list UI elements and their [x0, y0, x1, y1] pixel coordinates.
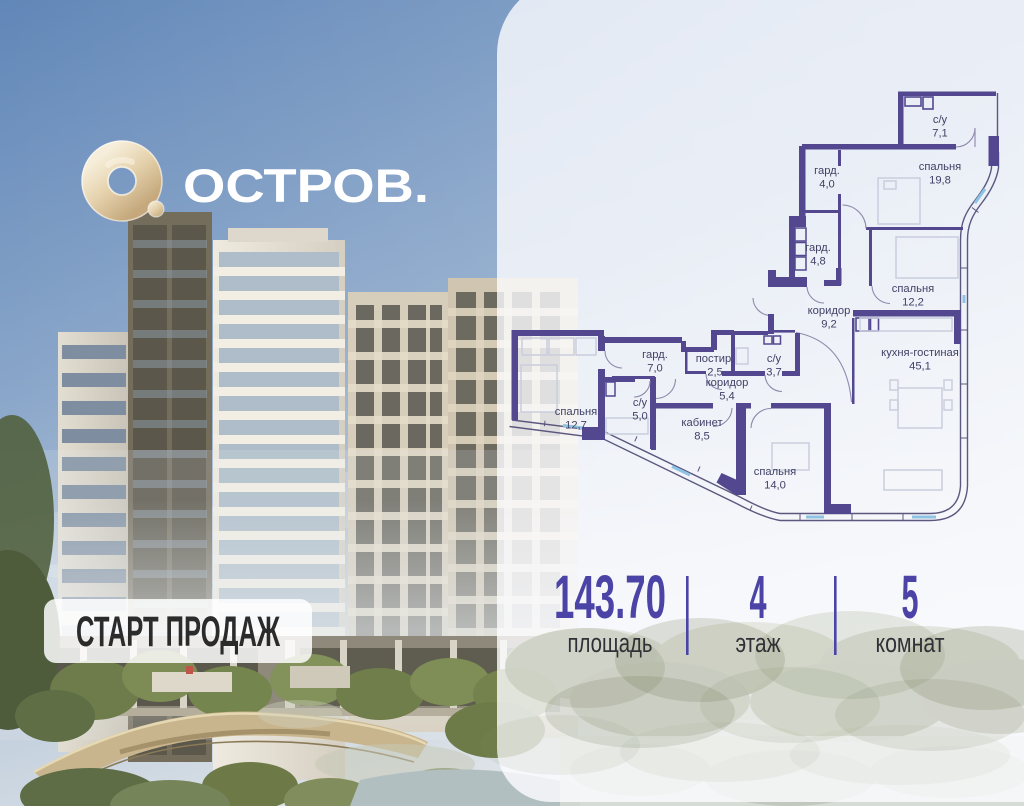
- svg-text:с/у5,0: с/у5,0: [632, 397, 648, 423]
- svg-text:коридор9,2: коридор9,2: [808, 305, 851, 331]
- svg-text:гард.4,8: гард.4,8: [805, 242, 831, 268]
- svg-text:4: 4: [750, 563, 767, 631]
- svg-text:этаж: этаж: [736, 628, 781, 658]
- svg-text:кабинет8,5: кабинет8,5: [681, 417, 722, 443]
- svg-text:гард.4,0: гард.4,0: [814, 165, 840, 191]
- svg-text:с/у3,7: с/у3,7: [766, 353, 782, 379]
- svg-text:площадь: площадь: [568, 628, 653, 658]
- svg-text:гард.7,0: гард.7,0: [642, 349, 668, 375]
- svg-text:спальня12,2: спальня12,2: [892, 283, 934, 309]
- svg-text:с/у7,1: с/у7,1: [932, 114, 948, 140]
- svg-text:кухня-гостиная45,1: кухня-гостиная45,1: [881, 347, 959, 373]
- svg-text:коридор5,4: коридор5,4: [706, 377, 749, 403]
- svg-text:комнат: комнат: [876, 628, 945, 658]
- svg-text:143.70: 143.70: [554, 563, 666, 631]
- svg-text:5: 5: [902, 563, 919, 631]
- svg-text:спальня14,0: спальня14,0: [754, 466, 796, 492]
- svg-text:спальня19,8: спальня19,8: [919, 161, 961, 187]
